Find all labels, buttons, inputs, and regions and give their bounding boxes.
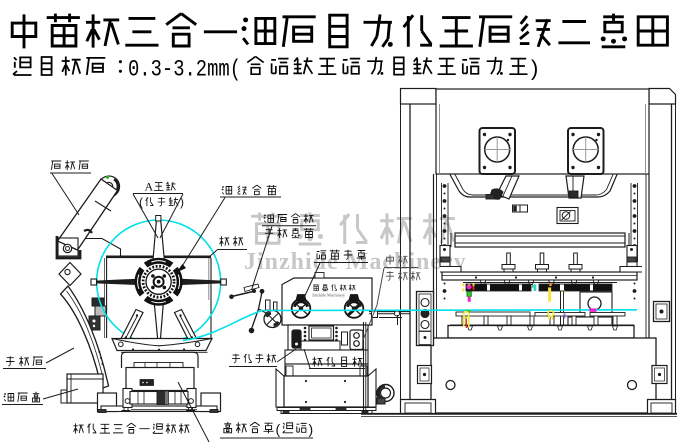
svg-text:A: A	[145, 180, 154, 194]
svg-text:): )	[531, 56, 538, 81]
svg-text:): )	[309, 421, 314, 437]
svg-text:(: (	[276, 421, 281, 437]
svg-text:Jinzhide Machinery: Jinzhide Machinery	[312, 293, 346, 298]
svg-text:(: (	[139, 195, 143, 209]
svg-text:0.3-3.2mm(: 0.3-3.2mm(	[128, 57, 241, 83]
svg-text:): )	[180, 195, 184, 209]
